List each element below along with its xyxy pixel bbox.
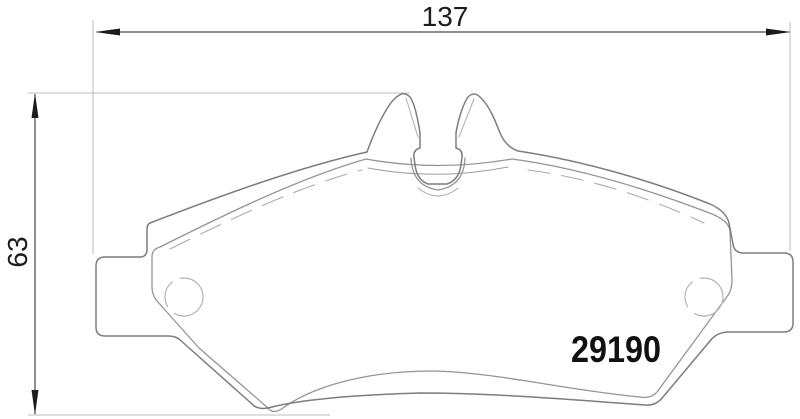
chamfer-line-center [368,167,508,174]
slot-deep-contour [418,188,458,196]
drawing-canvas: 137 63 29190 [0,0,800,419]
chamfer-dashed-line-right [528,170,704,223]
arrow-right-icon [766,29,791,36]
width-dimension-value: 137 [422,1,469,32]
arrow-left-icon [95,29,120,36]
part-number: 29190 [571,329,661,370]
height-dimension-value: 63 [2,236,33,267]
friction-material-outline [152,159,732,412]
right-hole [685,278,723,316]
arrow-up-icon [32,93,39,118]
arrow-down-icon [32,390,39,415]
brake-pad-technical-drawing: 137 63 29190 [0,0,800,419]
left-hole [165,278,203,316]
left-ear-inner-line [406,98,418,137]
chamfer-dashed-line-left [170,170,362,249]
backplate-outline [96,94,793,409]
right-ear-inner-line [459,99,474,137]
